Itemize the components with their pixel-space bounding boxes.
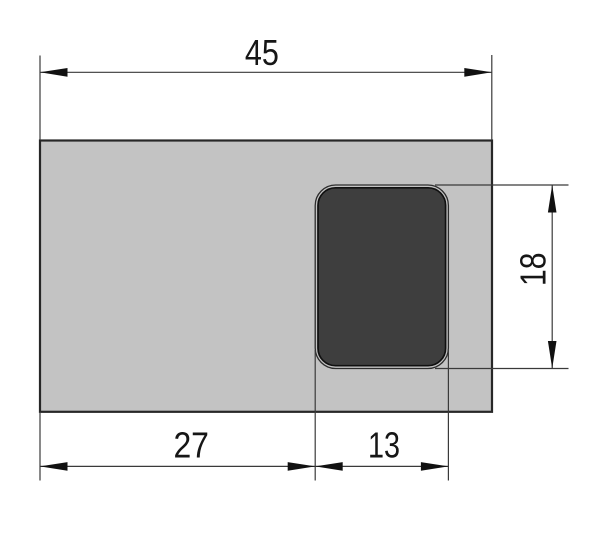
svg-text:45: 45 <box>245 32 279 73</box>
svg-text:18: 18 <box>513 252 554 286</box>
svg-text:13: 13 <box>368 425 400 466</box>
svg-text:27: 27 <box>173 425 209 466</box>
